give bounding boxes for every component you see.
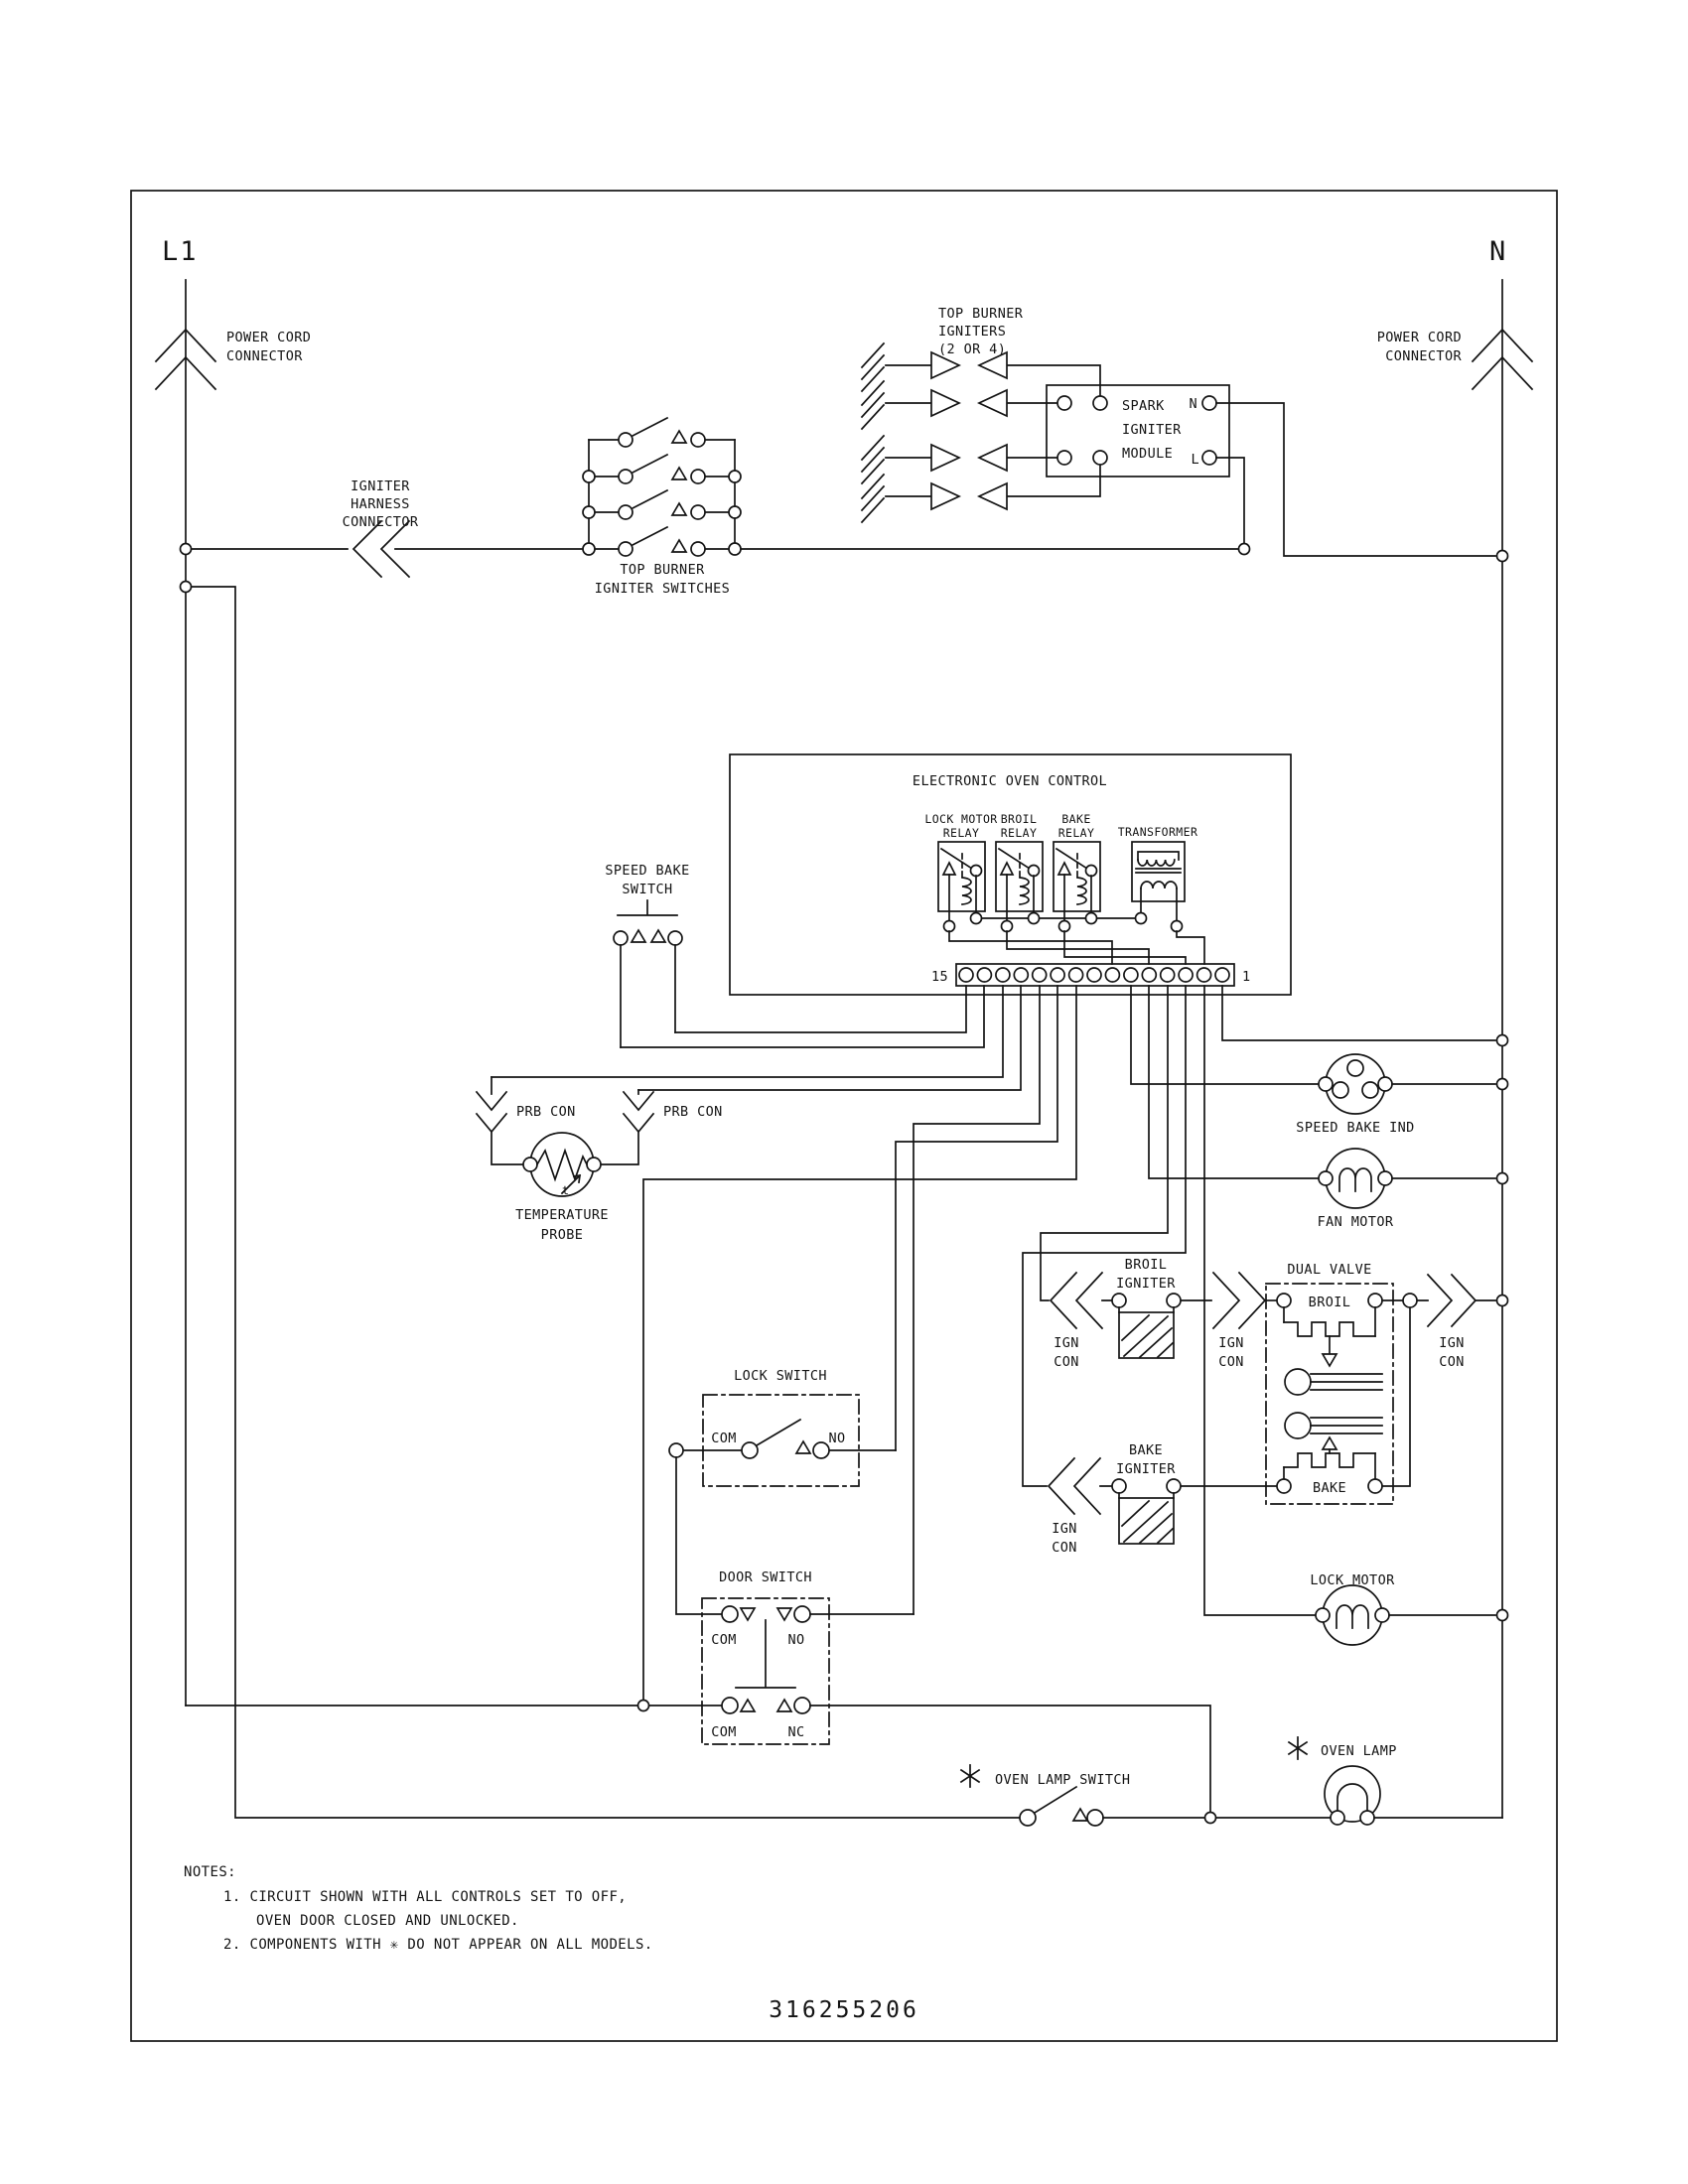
ign-con-label2: CON	[1439, 1354, 1465, 1370]
power-cord-connector-right-label2: CONNECTOR	[1385, 348, 1462, 364]
l1-label: L1	[162, 236, 199, 267]
module-n-terminal-label: N	[1189, 396, 1197, 412]
door-switch-com-bottom-label: COM	[711, 1724, 737, 1740]
power-cord-connector-left-label1: POWER CORD	[226, 330, 311, 345]
ign-con-label1: IGN	[1439, 1335, 1465, 1351]
top-burner-igniters-label3: (2 OR 4)	[938, 341, 1006, 357]
electronic-oven-control: ELECTRONIC OVEN CONTROL LOCK MOTOR RELAY…	[730, 754, 1291, 995]
speed-bake-switch: SPEED BAKE SWITCH	[605, 863, 689, 1047]
note-1-line-1: 1. CIRCUIT SHOWN WITH ALL CONTROLS SET T…	[223, 1889, 627, 1905]
igniter-harness-label2: HARNESS	[351, 496, 410, 512]
terminal-strip: 15 1	[931, 964, 1251, 986]
speed-bake-indicator: SPEED BAKE IND	[1296, 1054, 1495, 1136]
igniter-switches-label2: IGNITER SWITCHES	[595, 581, 730, 597]
igniter-switch-row	[583, 455, 741, 483]
power-cord-connector-left-label2: CONNECTOR	[226, 348, 303, 364]
terminal-strip-wiring	[492, 986, 1495, 1706]
lock-motor-relay: LOCK MOTOR RELAY	[924, 812, 997, 932]
dual-valve: DUAL VALVE BROIL BAKE IGN CON	[1266, 1262, 1495, 1504]
ign-con-label2: CON	[1052, 1540, 1077, 1556]
door-switch: DOOR SWITCH COM NO COM NC	[702, 1570, 1210, 1818]
probe-t-label: t	[562, 1183, 569, 1197]
door-switch-no-label: NO	[787, 1632, 804, 1648]
bake-igniter: BAKE IGNITER IGN CON	[1049, 1442, 1277, 1556]
broil-igniter-label2: IGNITER	[1116, 1276, 1176, 1292]
probe-connector-right: PRB CON	[601, 1090, 723, 1164]
top-burner-igniters-label1: TOP BURNER	[938, 306, 1024, 322]
relay1-label1: LOCK MOTOR	[924, 812, 997, 826]
relay-output-bus	[971, 913, 1147, 924]
ign-con-label2: CON	[1054, 1354, 1079, 1370]
igniter-harness-connector: IGNITER HARNESS CONNECTOR	[186, 478, 582, 577]
temperature-probe: t TEMPERATURE PROBE	[515, 1133, 609, 1243]
top-burner-igniters-label2: IGNITERS	[938, 324, 1006, 340]
probe-connector-left: PRB CON	[477, 1077, 576, 1164]
transformer: TRANSFORMER	[1118, 825, 1198, 932]
speed-bake-switch-label1: SPEED BAKE	[605, 863, 689, 879]
broil-igniter-label1: BROIL	[1125, 1257, 1168, 1273]
module-l-wire	[1216, 458, 1244, 543]
broil-igniter: BROIL IGNITER IGN CON IGN CON	[1051, 1257, 1277, 1370]
eoc-title: ELECTRONIC OVEN CONTROL	[913, 773, 1107, 789]
l1-branch-bus	[186, 587, 1020, 1818]
relay2-label2: RELAY	[1001, 826, 1038, 840]
temperature-probe-label1: TEMPERATURE	[515, 1207, 609, 1223]
spark-igniter-module-label3: MODULE	[1122, 446, 1173, 462]
pin-1-label: 1	[1242, 969, 1251, 985]
oven-lamp-switch-label: OVEN LAMP SWITCH	[995, 1772, 1130, 1788]
prb-con-right-icon	[624, 1092, 653, 1132]
oven-lamp-switch: OVEN LAMP SWITCH	[961, 1765, 1331, 1826]
lock-switch-com-label: COM	[711, 1431, 737, 1446]
lock-switch-no-label: NO	[828, 1431, 845, 1446]
eoc-internal-wires	[949, 931, 1204, 964]
wiring-diagram-sheet: L1 POWER CORD CONNECTOR N POWER CORD CON…	[0, 0, 1688, 2184]
prb-con-left-icon	[477, 1092, 506, 1132]
relay3-label1: BAKE	[1061, 812, 1090, 826]
bake-igniter-label1: BAKE	[1129, 1442, 1163, 1458]
module-n-wire	[1216, 403, 1495, 556]
top-burner-igniters: TOP BURNER IGNITERS (2 OR 4)	[862, 306, 1100, 522]
notes-heading: NOTES:	[184, 1864, 236, 1880]
igniter-switch-row	[583, 490, 741, 519]
top-burner-igniter	[862, 466, 1100, 522]
n-label: N	[1489, 236, 1507, 267]
wire-junctions	[181, 544, 1508, 1824]
ign-con-icon	[1051, 1273, 1102, 1328]
fan-motor: FAN MOTOR	[1318, 1149, 1495, 1230]
ign-con-icon	[1428, 1275, 1476, 1326]
relay3-label2: RELAY	[1058, 826, 1095, 840]
lock-switch-title: LOCK SWITCH	[734, 1368, 827, 1384]
ign-con-label1: IGN	[1218, 1335, 1244, 1351]
door-switch-com-top-label: COM	[711, 1632, 737, 1648]
notes: NOTES: 1. CIRCUIT SHOWN WITH ALL CONTROL…	[184, 1864, 653, 1953]
module-l-terminal-label: L	[1191, 452, 1199, 468]
spark-igniter-module: SPARK IGNITER MODULE N L	[1047, 385, 1495, 556]
sheet-border	[131, 191, 1557, 2041]
note-1-line-2: OVEN DOOR CLOSED AND UNLOCKED.	[256, 1913, 519, 1929]
igniter-harness-label3: CONNECTOR	[343, 514, 419, 530]
top-burner-igniter	[862, 381, 1056, 429]
speed-bake-ind-label: SPEED BAKE IND	[1296, 1120, 1414, 1136]
spark-igniter-module-label1: SPARK	[1122, 398, 1165, 414]
speed-bake-switch-label2: SWITCH	[622, 882, 672, 897]
ign-con-label1: IGN	[1054, 1335, 1079, 1351]
lock-motor: LOCK MOTOR	[1310, 1572, 1495, 1645]
igniter-switch-row	[589, 418, 735, 447]
ign-con-icon	[1049, 1458, 1100, 1514]
dual-valve-title: DUAL VALVE	[1287, 1262, 1371, 1278]
asterisk-icon	[961, 1765, 979, 1787]
n-rail: N POWER CORD CONNECTOR	[1377, 236, 1532, 1818]
oven-lamp: OVEN LAMP	[1289, 1737, 1502, 1825]
prb-con-left-label: PRB CON	[516, 1104, 576, 1120]
transformer-label: TRANSFORMER	[1118, 825, 1198, 839]
part-number: 316255206	[769, 1997, 919, 2023]
power-cord-connector-right-label1: POWER CORD	[1377, 330, 1462, 345]
ign-con-label2: CON	[1218, 1354, 1244, 1370]
door-switch-title: DOOR SWITCH	[719, 1570, 812, 1585]
ign-con-icon	[1213, 1273, 1265, 1328]
relay2-label1: BROIL	[1001, 812, 1038, 826]
wiring-diagram: L1 POWER CORD CONNECTOR N POWER CORD CON…	[0, 0, 1688, 2184]
top-burner-igniter	[862, 436, 1056, 483]
spark-igniter-module-label2: IGNITER	[1122, 422, 1182, 438]
pin-15-label: 15	[931, 969, 948, 985]
door-switch-nc-label: NC	[787, 1724, 804, 1740]
igniter-switches-label1: TOP BURNER	[620, 562, 705, 578]
igniter-switch-row	[583, 527, 1244, 556]
asterisk-icon	[1289, 1737, 1307, 1759]
temperature-probe-label2: PROBE	[541, 1227, 584, 1243]
dual-valve-broil-label: BROIL	[1309, 1295, 1351, 1310]
dual-valve-bake-label: BAKE	[1313, 1480, 1346, 1496]
note-2: 2. COMPONENTS WITH ✳ DO NOT APPEAR ON AL…	[223, 1937, 653, 1953]
igniter-harness-label1: IGNITER	[351, 478, 410, 494]
bake-igniter-label2: IGNITER	[1116, 1461, 1176, 1477]
ign-con-label1: IGN	[1052, 1521, 1077, 1537]
prb-con-right-label: PRB CON	[663, 1104, 723, 1120]
top-burner-igniter-switches: TOP BURNER IGNITER SWITCHES	[583, 418, 1244, 597]
l1-rail: L1 POWER CORD CONNECTOR	[156, 236, 311, 1706]
oven-lamp-label: OVEN LAMP	[1321, 1743, 1397, 1759]
fan-motor-label: FAN MOTOR	[1318, 1214, 1394, 1230]
relay1-label2: RELAY	[943, 826, 980, 840]
